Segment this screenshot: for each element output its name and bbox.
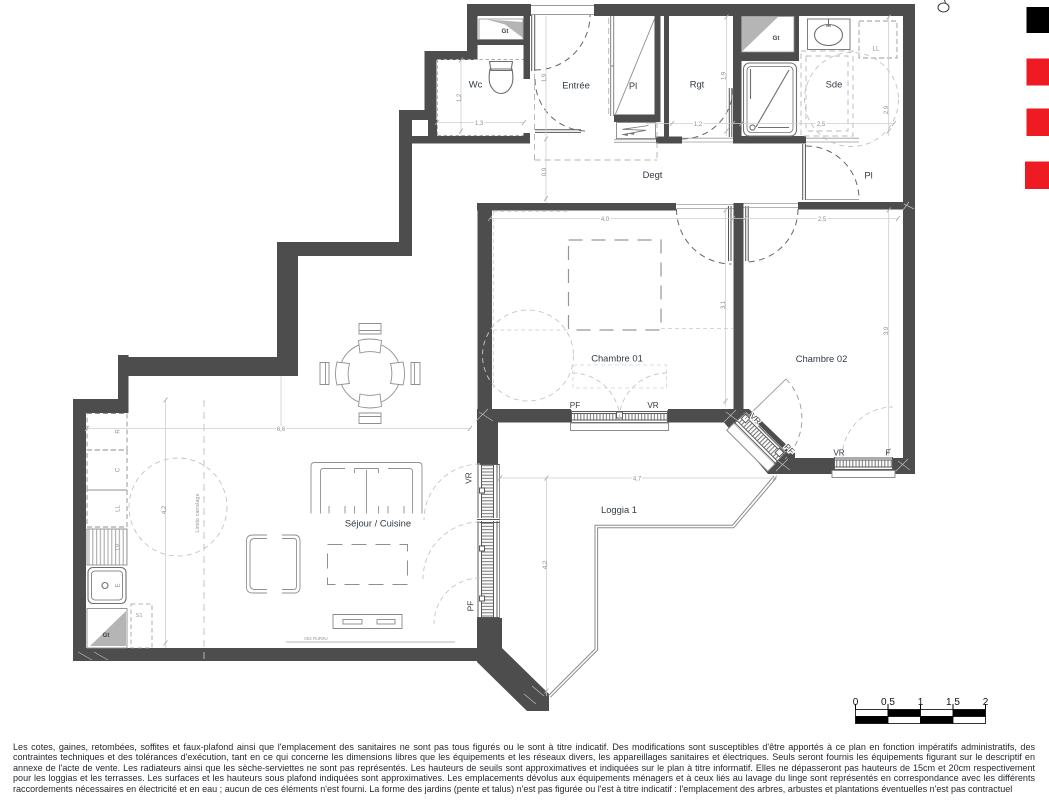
svg-text:Sde: Sde (826, 79, 843, 90)
svg-text:1,3: 1,3 (475, 121, 484, 127)
svg-text:Wc: Wc (469, 79, 483, 90)
svg-text:Gt: Gt (773, 35, 781, 42)
svg-text:1,2: 1,2 (694, 122, 703, 128)
svg-text:PF: PF (467, 601, 476, 611)
svg-text:Séjour / Cuisine: Séjour / Cuisine (345, 518, 411, 529)
svg-text:Entrée: Entrée (562, 80, 590, 91)
svg-text:6,6: 6,6 (277, 427, 286, 433)
svg-text:0,9: 0,9 (542, 167, 548, 176)
svg-text:R: R (116, 429, 122, 434)
svg-text:LV: LV (116, 544, 122, 551)
svg-text:C: C (116, 467, 122, 472)
svg-text:E: E (116, 583, 122, 587)
svg-text:Rgt: Rgt (690, 79, 705, 90)
svg-text:VR: VR (465, 472, 474, 483)
svg-text:1,9: 1,9 (722, 71, 728, 80)
svg-text:Pl: Pl (629, 80, 637, 91)
svg-text:1: 1 (918, 697, 924, 708)
svg-text:Chambre 02: Chambre 02 (796, 353, 848, 364)
svg-text:2,5: 2,5 (818, 217, 827, 223)
svg-text:2,5: 2,5 (817, 122, 826, 128)
svg-text:Chambre 01: Chambre 01 (591, 353, 643, 364)
svg-text:Limite carrelage: Limite carrelage (195, 493, 201, 532)
svg-text:0,5: 0,5 (881, 697, 895, 708)
svg-text:2: 2 (983, 697, 989, 708)
svg-text:Gt: Gt (103, 632, 111, 639)
svg-text:1,5: 1,5 (946, 697, 960, 708)
svg-text:1,2: 1,2 (457, 93, 463, 102)
svg-text:2,9: 2,9 (884, 105, 890, 114)
svg-text:Degt: Degt (643, 169, 663, 180)
svg-text:1,9: 1,9 (542, 73, 548, 82)
svg-text:4,2: 4,2 (162, 505, 168, 514)
svg-text:PF: PF (570, 401, 580, 410)
svg-text:3,1: 3,1 (721, 300, 727, 309)
svg-text:LL: LL (872, 46, 880, 53)
svg-text:052 RuR9U: 052 RuR9U (304, 636, 328, 641)
svg-text:4,7: 4,7 (633, 477, 642, 483)
svg-text:Loggia 1: Loggia 1 (601, 504, 637, 515)
svg-text:4,2: 4,2 (543, 560, 549, 569)
svg-text:4,0: 4,0 (601, 217, 610, 223)
svg-text:LL: LL (116, 505, 122, 512)
svg-text:VR: VR (647, 401, 658, 410)
svg-text:3,9: 3,9 (884, 326, 890, 335)
svg-text:Pl: Pl (864, 169, 872, 180)
svg-text:S1: S1 (135, 613, 142, 619)
svg-text:F: F (885, 449, 890, 458)
svg-text:VR: VR (833, 449, 844, 458)
svg-text:Gt: Gt (502, 28, 510, 35)
svg-text:0: 0 (853, 697, 859, 708)
